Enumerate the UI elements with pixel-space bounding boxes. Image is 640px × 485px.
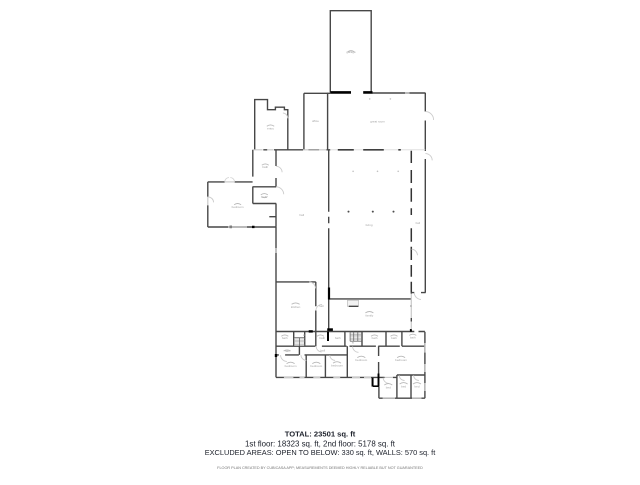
- svg-text:1st floor: 18323 sq. ft, 2nd f: 1st floor: 18323 sq. ft, 2nd floor: 5178…: [245, 439, 396, 448]
- svg-text:bath: bath: [262, 165, 268, 169]
- svg-text:bedroom: bedroom: [232, 205, 244, 209]
- svg-text:living: living: [366, 223, 373, 227]
- svg-text:hall: hall: [319, 304, 324, 308]
- svg-text:hall: hall: [320, 348, 325, 352]
- svg-text:TOTAL: 23501 sq. ft: TOTAL: 23501 sq. ft: [285, 430, 356, 439]
- svg-text:bath: bath: [391, 336, 397, 340]
- svg-text:bedroom: bedroom: [285, 364, 297, 368]
- svg-text:bedroom: bedroom: [310, 364, 322, 368]
- svg-text:FLOOR PLAN CREATED BY CUBICASA: FLOOR PLAN CREATED BY CUBICASA APP; MEAS…: [217, 466, 423, 470]
- svg-text:great room: great room: [370, 120, 385, 124]
- svg-text:bedroom: bedroom: [355, 358, 367, 362]
- svg-text:kitchen: kitchen: [291, 305, 301, 309]
- svg-text:bath: bath: [335, 336, 341, 340]
- svg-text:bed: bed: [414, 385, 419, 389]
- svg-text:bed: bed: [386, 386, 391, 390]
- svg-text:bath: bath: [282, 336, 288, 340]
- svg-text:hall: hall: [299, 213, 304, 217]
- svg-text:bath: bath: [319, 336, 325, 340]
- svg-text:entry: entry: [267, 127, 274, 131]
- svg-text:bed: bed: [401, 385, 406, 389]
- svg-text:family: family: [365, 313, 373, 317]
- svg-text:hall: hall: [416, 221, 421, 225]
- svg-text:bedroom: bedroom: [395, 358, 407, 362]
- svg-text:st: st: [303, 333, 306, 337]
- svg-text:bath: bath: [372, 336, 378, 340]
- svg-text:EXCLUDED AREAS: OPEN TO BELOW:: EXCLUDED AREAS: OPEN TO BELOW: 330 sq. f…: [205, 448, 436, 457]
- svg-text:bath: bath: [410, 335, 416, 339]
- svg-text:office: office: [312, 119, 319, 123]
- svg-text:st: st: [352, 340, 355, 344]
- svg-text:bedroom: bedroom: [331, 364, 343, 368]
